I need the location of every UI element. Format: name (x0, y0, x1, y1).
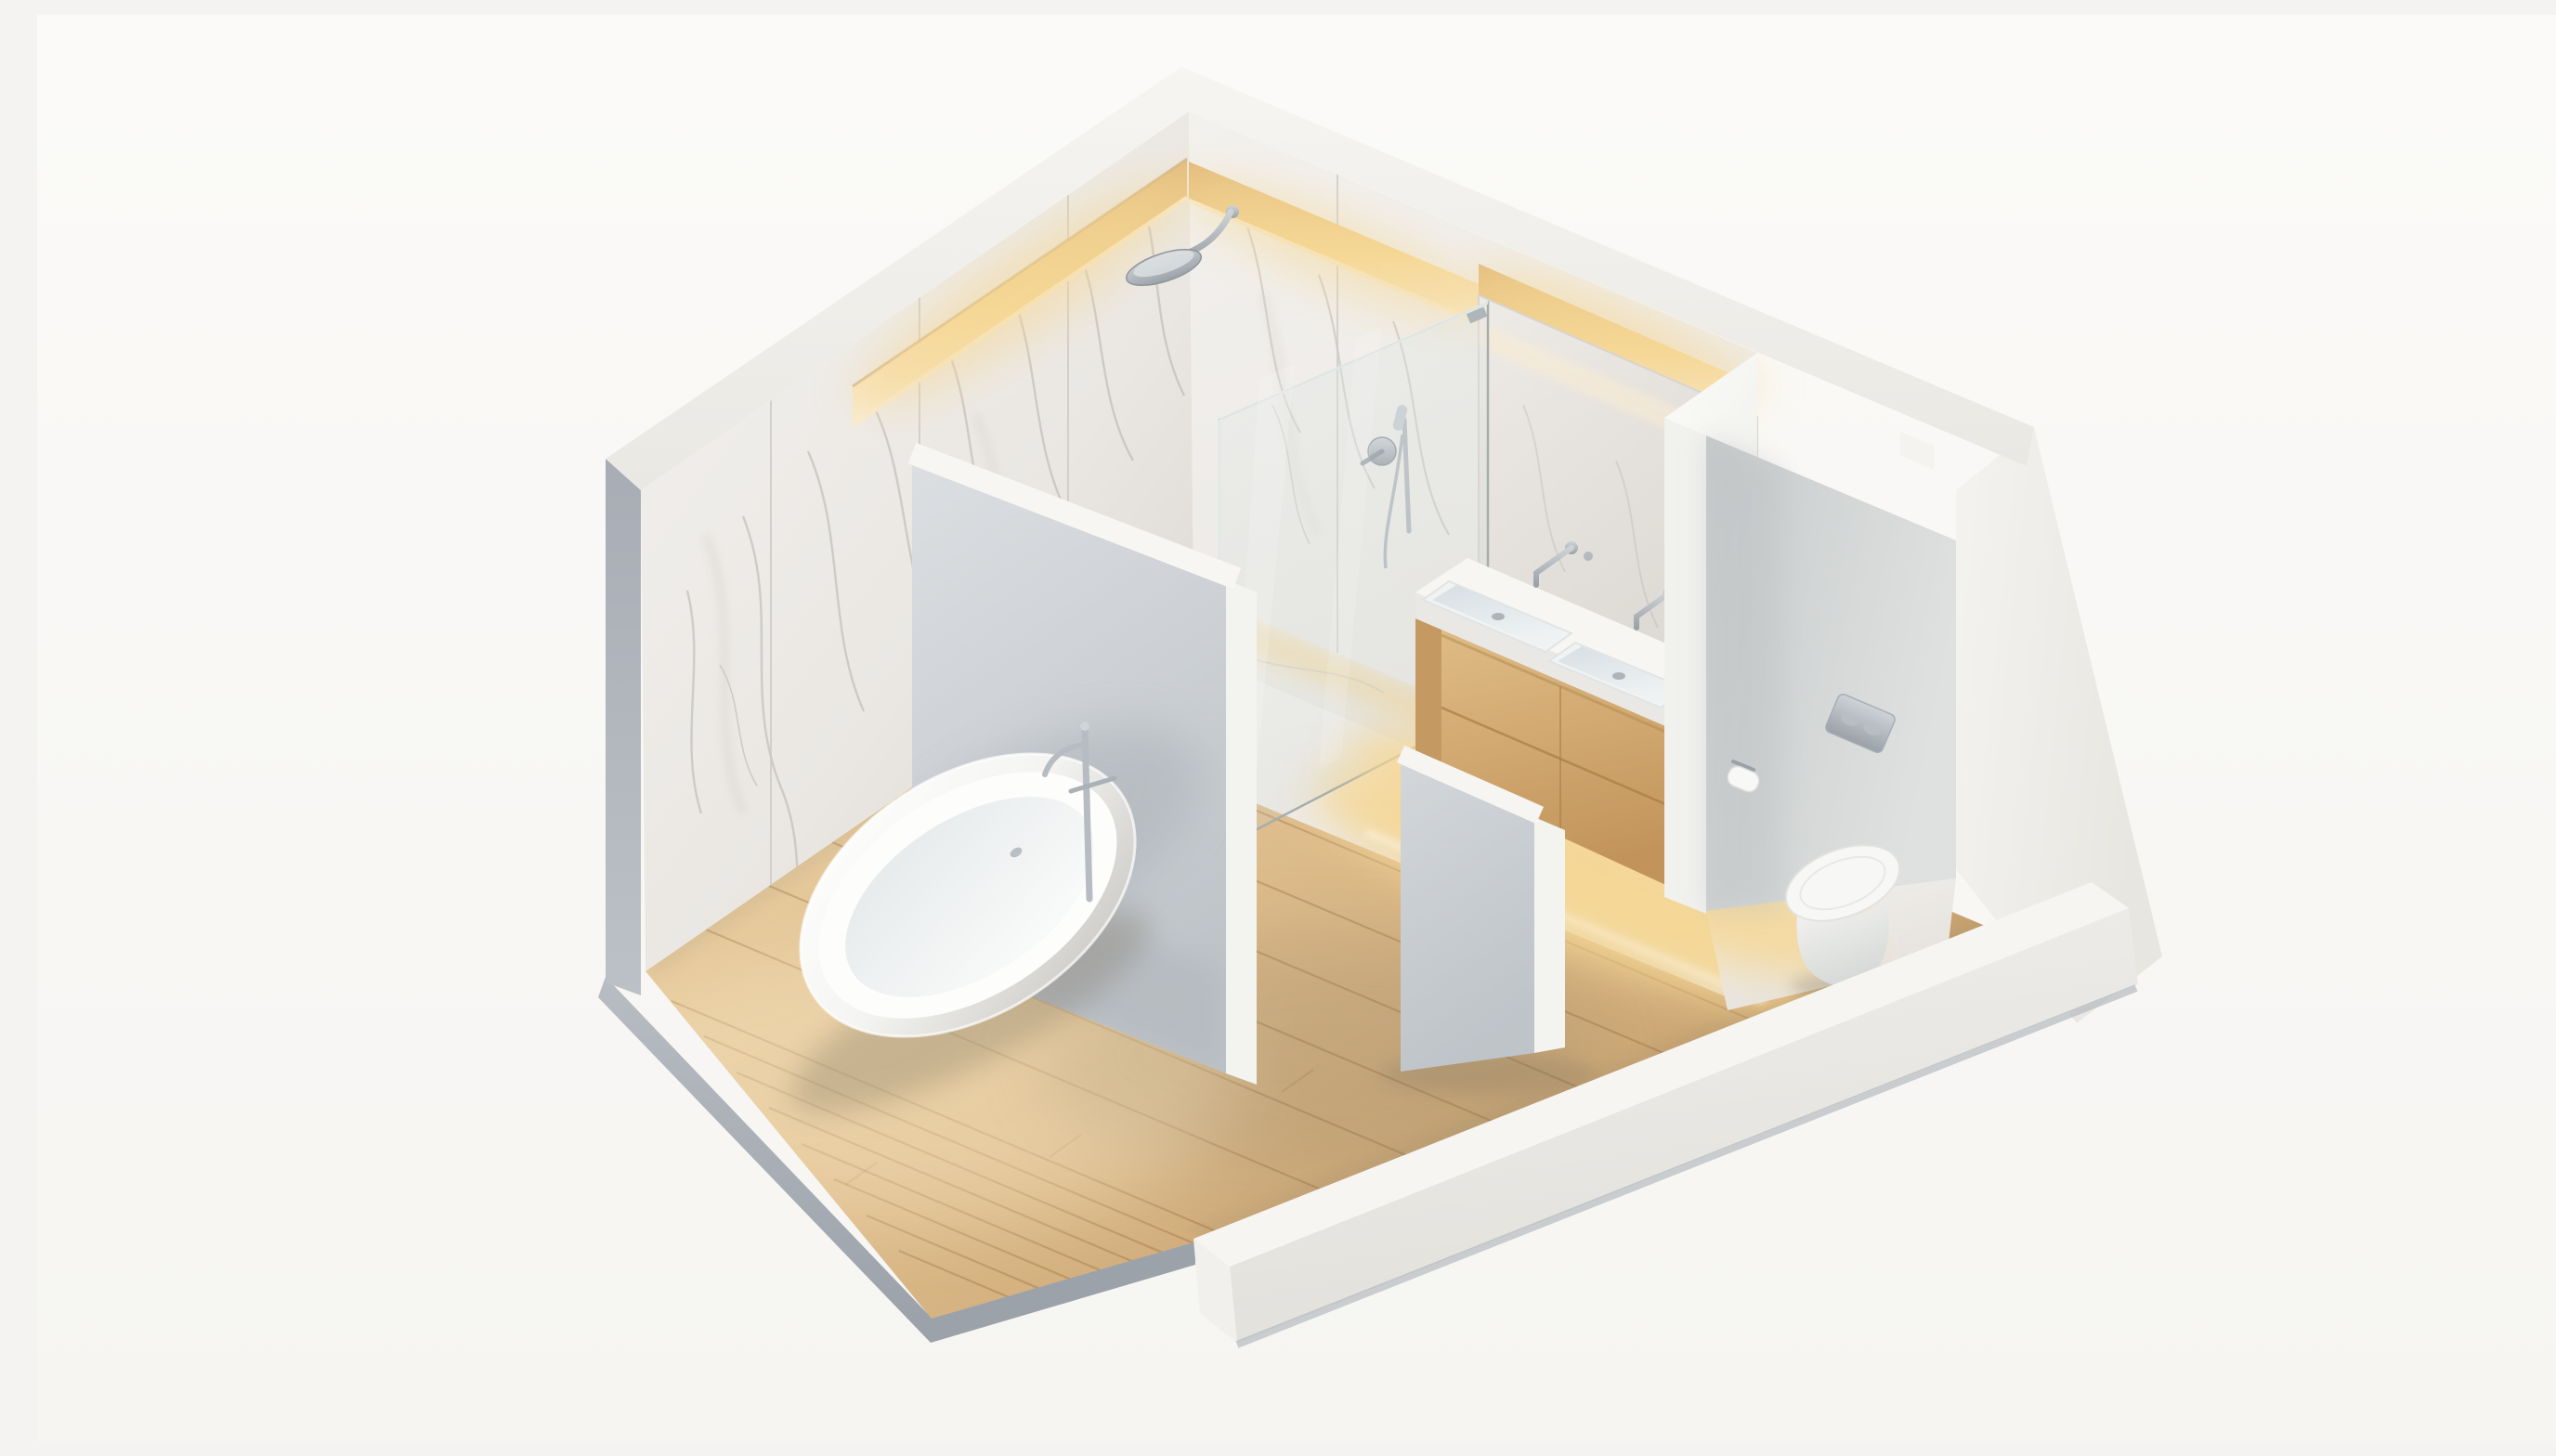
bathroom-isometric-render: Isometric 3D cutaway render of a modern … (37, 15, 2556, 1441)
sink-drain (1612, 672, 1625, 680)
half-wall-end-face (1534, 817, 1565, 1053)
pilaster-front-face (1664, 418, 1706, 914)
partition-end-face (1226, 579, 1257, 1085)
left-wall-cut-side (606, 459, 641, 995)
scene-canvas (37, 15, 2556, 1441)
niche-shadow (1706, 435, 1783, 911)
sink-drain (1492, 613, 1505, 620)
